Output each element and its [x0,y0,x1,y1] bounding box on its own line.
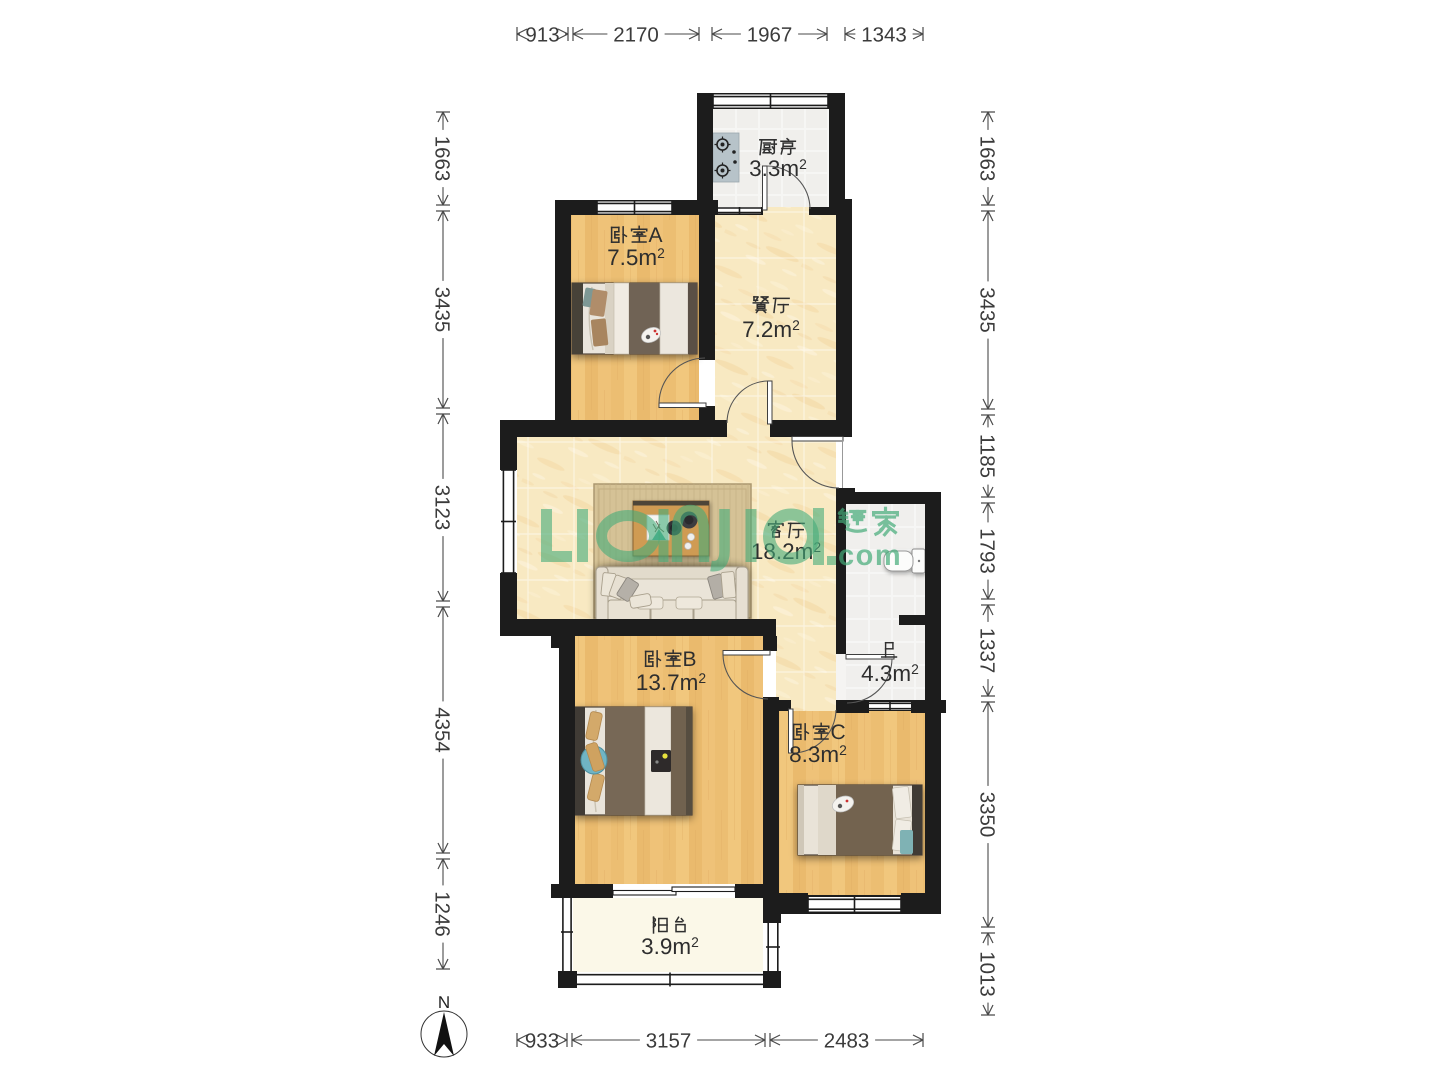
svg-text:A: A [649,224,663,247]
svg-text:4.3m2: 4.3m2 [861,661,919,686]
svg-text:3350: 3350 [976,792,999,838]
svg-text:com: com [838,540,902,572]
svg-text:2170: 2170 [613,23,659,46]
svg-text:3.3m2: 3.3m2 [749,156,807,181]
svg-text:1663: 1663 [976,136,999,182]
svg-text:13.7m2: 13.7m2 [636,670,707,695]
svg-text:B: B [683,648,697,671]
svg-text:1337: 1337 [976,628,999,674]
svg-text:8.3m2: 8.3m2 [789,742,847,767]
svg-text:1793: 1793 [976,528,999,574]
svg-text:4354: 4354 [431,707,454,753]
svg-text:C: C [831,721,846,744]
svg-text:913: 913 [525,23,559,46]
svg-text:1013: 1013 [976,951,999,997]
svg-text:933: 933 [525,1029,559,1052]
svg-text:7.2m2: 7.2m2 [742,317,800,342]
svg-text:3435: 3435 [431,287,454,333]
svg-text:2483: 2483 [824,1029,870,1052]
svg-text:3123: 3123 [431,485,454,531]
svg-text:1663: 1663 [431,136,454,182]
svg-text:1246: 1246 [431,891,454,937]
svg-text:3435: 3435 [976,287,999,333]
svg-text:1185: 1185 [976,434,999,478]
svg-text:1343: 1343 [861,23,907,46]
svg-text:1967: 1967 [747,23,793,46]
svg-text:3.9m2: 3.9m2 [641,934,699,959]
svg-text:N: N [438,993,450,1012]
svg-text:7.5m2: 7.5m2 [607,245,665,270]
svg-text:3157: 3157 [646,1029,692,1052]
